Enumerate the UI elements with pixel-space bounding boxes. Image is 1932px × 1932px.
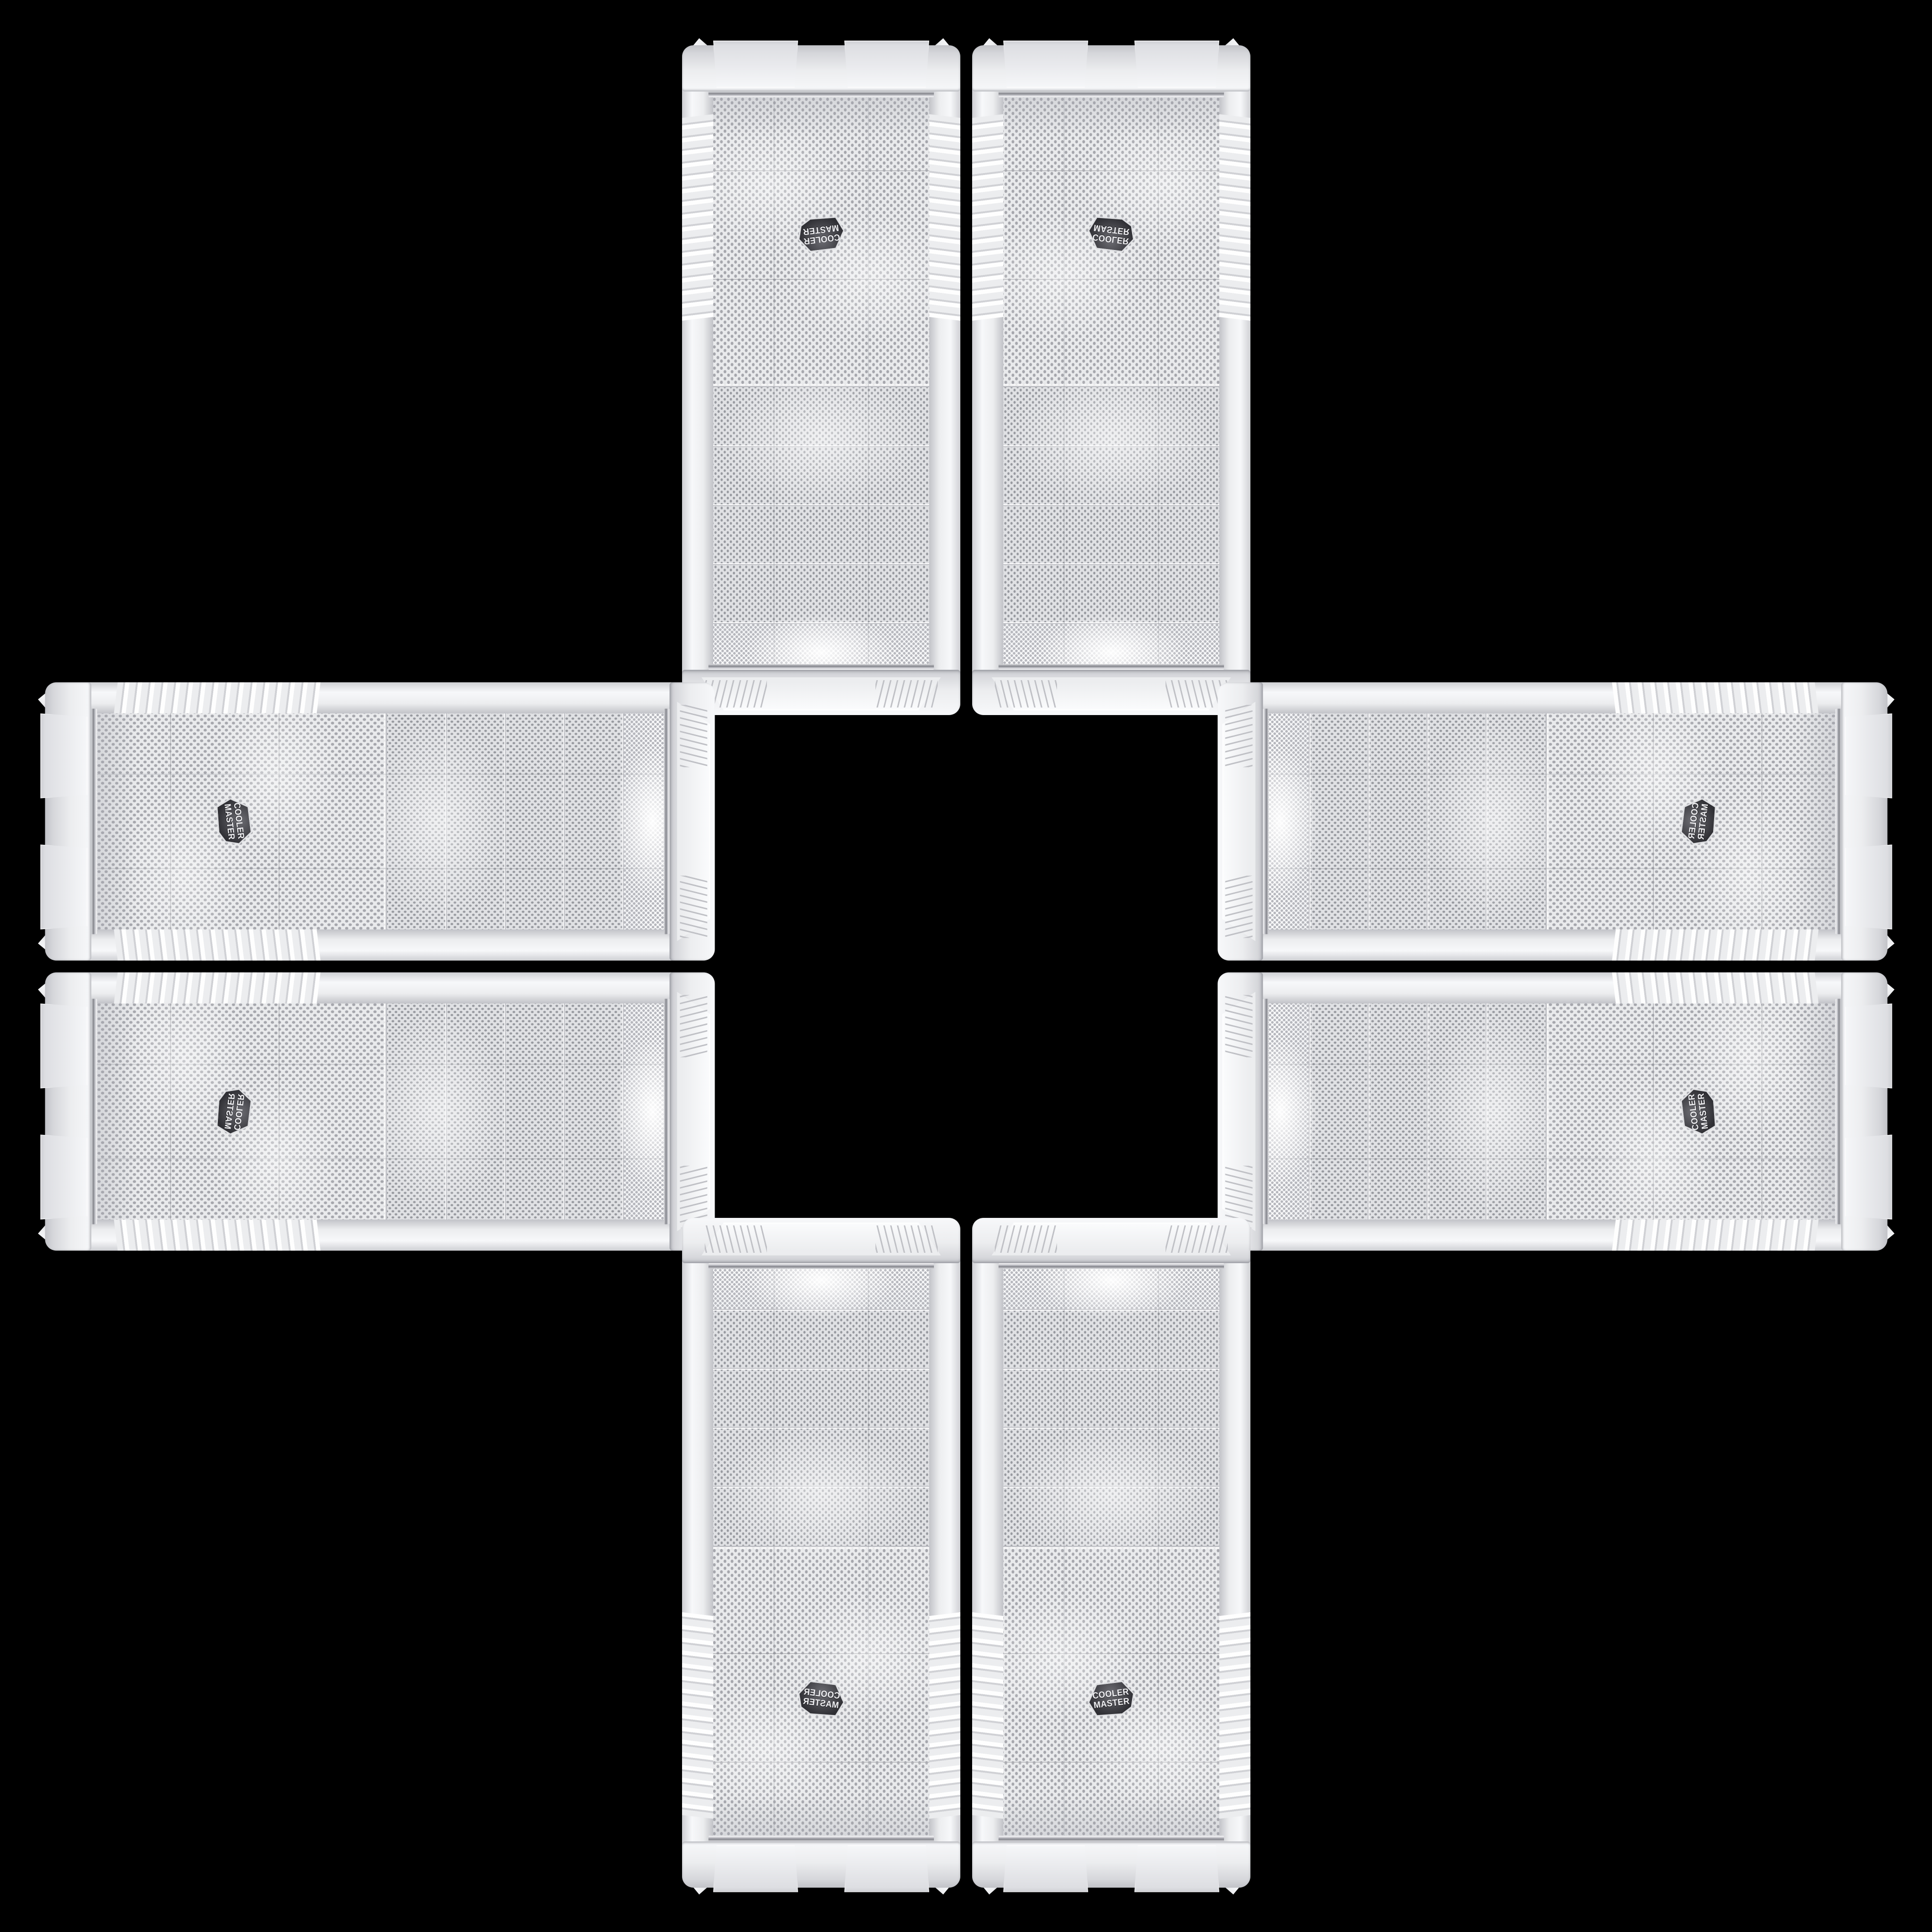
- pc-case-right-bottom: COOLER MASTER: [1218, 972, 1895, 1250]
- pillar-chevron-ribs: [972, 1612, 1004, 1818]
- pc-case-bottom-right: COOLER MASTER: [972, 1218, 1250, 1895]
- case-foot: [713, 41, 798, 88]
- drive-bay-cover: [1369, 712, 1429, 930]
- pillar-chevron-ribs: [114, 972, 320, 1004]
- chrome-trim-top: [664, 708, 670, 934]
- pillar-chevron-ribs: [1612, 972, 1818, 1004]
- drive-bay-cover: [712, 1487, 930, 1547]
- pillar-chevron-ribs: [929, 114, 961, 320]
- drive-bay-cover: [1487, 1002, 1547, 1220]
- mesh-top-strip: [1263, 712, 1311, 930]
- case-right-pillar: [682, 38, 713, 675]
- front-mesh-panel: COOLER MASTER: [1263, 1002, 1841, 1220]
- cap-vent-ribs: [1225, 705, 1253, 767]
- drive-bay-cover: [1428, 712, 1488, 930]
- mesh-seam: [1158, 1263, 1159, 1841]
- cap-vent-ribs: [680, 705, 708, 767]
- case-foot: [713, 1845, 798, 1892]
- mesh-seam: [712, 170, 930, 171]
- mesh-seam: [1263, 1158, 1841, 1159]
- mesh-seam: [1064, 1263, 1065, 1841]
- chrome-trim-bottom: [708, 92, 934, 97]
- chrome-trim-top: [1263, 708, 1269, 934]
- case-foot: [41, 1003, 88, 1088]
- drive-bay-cover: [504, 712, 564, 930]
- mesh-seam: [712, 1762, 930, 1763]
- mesh-seam: [1653, 712, 1654, 930]
- case-foot: [844, 41, 929, 88]
- case-bottom-cap: [972, 1841, 1250, 1888]
- cap-vent-ribs: [1225, 995, 1253, 1057]
- case-right-pillar: [1219, 38, 1250, 675]
- drive-bay-cover: [1002, 1487, 1220, 1547]
- chrome-trim-top: [1263, 999, 1269, 1224]
- chrome-trim-top: [708, 1263, 934, 1269]
- mesh-seam: [712, 1653, 930, 1654]
- mesh-seam: [92, 1158, 670, 1159]
- chrome-trim-bottom: [1836, 999, 1841, 1224]
- pillar-chevron-ribs: [1612, 1219, 1818, 1251]
- mesh-seam: [1002, 279, 1220, 280]
- case-foot: [1134, 41, 1219, 88]
- front-mesh-panel: COOLER MASTER: [1263, 712, 1841, 930]
- mesh-top-strip: [1263, 1002, 1311, 1220]
- pc-case-top-right: COOLER MASTER: [972, 38, 1250, 715]
- pc-case-right-top: COOLER MASTER: [1218, 682, 1895, 960]
- drive-bay-cover: [1487, 712, 1547, 930]
- mesh-seam: [170, 1002, 171, 1220]
- mesh-seam: [92, 868, 670, 869]
- pillar-chevron-ribs: [114, 682, 320, 714]
- drive-bay-cover: [1002, 386, 1220, 446]
- case-foot: [1845, 1134, 1892, 1219]
- case-right-pillar: [682, 1257, 713, 1895]
- drive-bay-cover: [1002, 445, 1220, 505]
- drive-bay-cover: [712, 1310, 930, 1370]
- case-foot: [41, 1134, 88, 1219]
- drive-bay-cover: [712, 504, 930, 564]
- case-foot: [41, 713, 88, 798]
- pc-case-top-left: COOLER MASTER: [682, 38, 960, 715]
- case-foot: [1845, 713, 1892, 798]
- pillar-chevron-ribs: [1612, 929, 1818, 961]
- mesh-seam: [1064, 92, 1065, 670]
- pillar-chevron-ribs: [1612, 682, 1818, 714]
- case-right-pillar: [1257, 972, 1895, 1003]
- case-foot: [1845, 1003, 1892, 1088]
- drive-bay-cover: [563, 1002, 623, 1220]
- mesh-seam: [712, 279, 930, 280]
- drive-bay-cover: [712, 563, 930, 623]
- mesh-seam: [279, 1002, 280, 1220]
- drive-bay-cover: [1002, 1428, 1220, 1488]
- chrome-trim-top: [664, 999, 670, 1224]
- drive-bay-cover: [712, 1428, 930, 1488]
- pillar-chevron-ribs: [929, 1612, 961, 1818]
- drive-bay-cover: [386, 1002, 446, 1220]
- case-right-pillar: [1219, 1257, 1250, 1895]
- mesh-seam: [1263, 1064, 1841, 1065]
- case-left-pillar: [1257, 1219, 1895, 1250]
- drive-bay-cover: [386, 712, 446, 930]
- case-right-pillar: [38, 972, 675, 1003]
- drive-bay-cover: [1002, 563, 1220, 623]
- collage-stage: COOLER MASTER: [0, 0, 1932, 1932]
- drive-bay-cover: [1310, 712, 1370, 930]
- case-bottom-cap: [682, 1841, 960, 1888]
- case-top-cap: [670, 972, 715, 1250]
- mesh-seam: [868, 92, 869, 670]
- drive-bay-cover: [712, 445, 930, 505]
- chrome-trim-top: [999, 664, 1224, 670]
- mesh-seam: [1158, 92, 1159, 670]
- mesh-seam: [774, 1263, 774, 1841]
- drive-bay-cover: [1002, 504, 1220, 564]
- mesh-seam: [92, 1064, 670, 1065]
- chrome-trim-bottom: [708, 1836, 934, 1841]
- mesh-top-strip: [712, 622, 930, 670]
- mesh-top-strip: [1002, 1263, 1220, 1311]
- pillar-chevron-ribs: [972, 114, 1004, 320]
- drive-bay-cover: [1002, 1369, 1220, 1429]
- case-bottom-cap: [1841, 682, 1888, 960]
- chrome-trim-bottom: [92, 708, 97, 934]
- mesh-seam: [774, 92, 774, 670]
- case-left-pillar: [38, 1219, 675, 1250]
- chrome-trim-bottom: [92, 999, 97, 1224]
- cap-vent-ribs: [1225, 875, 1253, 938]
- case-top-cap: [682, 1218, 960, 1263]
- mesh-seam: [279, 712, 280, 930]
- pillar-chevron-ribs: [114, 1219, 320, 1251]
- case-left-pillar: [972, 38, 1003, 675]
- drive-bay-cover: [1310, 1002, 1370, 1220]
- case-foot: [1003, 41, 1088, 88]
- case-left-pillar: [929, 38, 960, 675]
- case-top-cap: [682, 670, 960, 715]
- case-top-cap: [972, 1218, 1250, 1263]
- case-bottom-cap: [972, 45, 1250, 92]
- mesh-seam: [1002, 1762, 1220, 1763]
- pillar-chevron-ribs: [114, 929, 320, 961]
- drive-bay-cover: [445, 712, 505, 930]
- case-left-pillar: [38, 682, 675, 713]
- case-foot: [1845, 844, 1892, 929]
- cap-vent-ribs: [680, 875, 708, 938]
- mesh-seam: [170, 712, 171, 930]
- drive-bay-cover: [712, 1369, 930, 1429]
- chrome-trim-top: [708, 664, 934, 670]
- mesh-seam: [92, 774, 670, 774]
- cap-vent-ribs: [875, 1225, 938, 1253]
- pc-case-left-top: COOLER MASTER: [38, 682, 715, 960]
- drive-bay-cover: [1428, 1002, 1488, 1220]
- cap-vent-ribs: [875, 680, 938, 708]
- pillar-chevron-ribs: [1219, 114, 1251, 320]
- mesh-seam: [1762, 1002, 1763, 1220]
- pillar-chevron-ribs: [682, 114, 714, 320]
- pillar-chevron-ribs: [682, 1612, 714, 1818]
- front-mesh-panel: COOLER MASTER: [1002, 1263, 1220, 1841]
- drive-bay-cover: [1369, 1002, 1429, 1220]
- mesh-seam: [868, 1263, 869, 1841]
- front-mesh-panel: COOLER MASTER: [1002, 92, 1220, 670]
- mesh-seam: [1002, 1653, 1220, 1654]
- case-top-cap: [1218, 682, 1263, 960]
- chrome-trim-bottom: [1836, 708, 1841, 934]
- front-mesh-panel: COOLER MASTER: [92, 712, 670, 930]
- drive-bay-cover: [445, 1002, 505, 1220]
- case-bottom-cap: [45, 972, 92, 1250]
- case-foot: [41, 844, 88, 929]
- cap-vent-ribs: [1166, 1225, 1228, 1253]
- cap-vent-ribs: [995, 1225, 1057, 1253]
- case-foot: [1134, 1845, 1219, 1892]
- pc-case-left-bottom: COOLER MASTER: [38, 972, 715, 1250]
- chrome-trim-bottom: [999, 1836, 1224, 1841]
- mesh-seam: [1002, 170, 1220, 171]
- case-left-pillar: [929, 1257, 960, 1895]
- front-mesh-panel: COOLER MASTER: [712, 1263, 930, 1841]
- mesh-seam: [1762, 712, 1763, 930]
- drive-bay-cover: [1002, 1310, 1220, 1370]
- mesh-seam: [1263, 774, 1841, 774]
- case-right-pillar: [1257, 929, 1895, 960]
- case-top-cap: [972, 670, 1250, 715]
- case-bottom-cap: [682, 45, 960, 92]
- front-mesh-panel: COOLER MASTER: [712, 92, 930, 670]
- mesh-top-strip: [1002, 622, 1220, 670]
- chrome-trim-top: [999, 1263, 1224, 1269]
- drive-bay-cover: [563, 712, 623, 930]
- drive-bay-cover: [504, 1002, 564, 1220]
- case-foot: [844, 1845, 929, 1892]
- case-bottom-cap: [45, 682, 92, 960]
- chrome-trim-bottom: [999, 92, 1224, 97]
- cap-vent-ribs: [995, 680, 1057, 708]
- case-top-cap: [1218, 972, 1263, 1250]
- mesh-seam: [1653, 1002, 1654, 1220]
- drive-bay-cover: [712, 386, 930, 446]
- pc-case-bottom-left: COOLER MASTER: [682, 1218, 960, 1895]
- case-foot: [1003, 1845, 1088, 1892]
- mesh-top-strip: [622, 1002, 670, 1220]
- cap-vent-ribs: [680, 995, 708, 1057]
- mesh-top-strip: [622, 712, 670, 930]
- case-bottom-cap: [1841, 972, 1888, 1250]
- case-left-pillar: [972, 1257, 1003, 1895]
- case-top-cap: [670, 682, 715, 960]
- pillar-chevron-ribs: [1219, 1612, 1251, 1818]
- front-mesh-panel: COOLER MASTER: [92, 1002, 670, 1220]
- mesh-seam: [1263, 868, 1841, 869]
- case-left-pillar: [1257, 682, 1895, 713]
- mesh-top-strip: [712, 1263, 930, 1311]
- cap-vent-ribs: [705, 1225, 767, 1253]
- case-right-pillar: [38, 929, 675, 960]
